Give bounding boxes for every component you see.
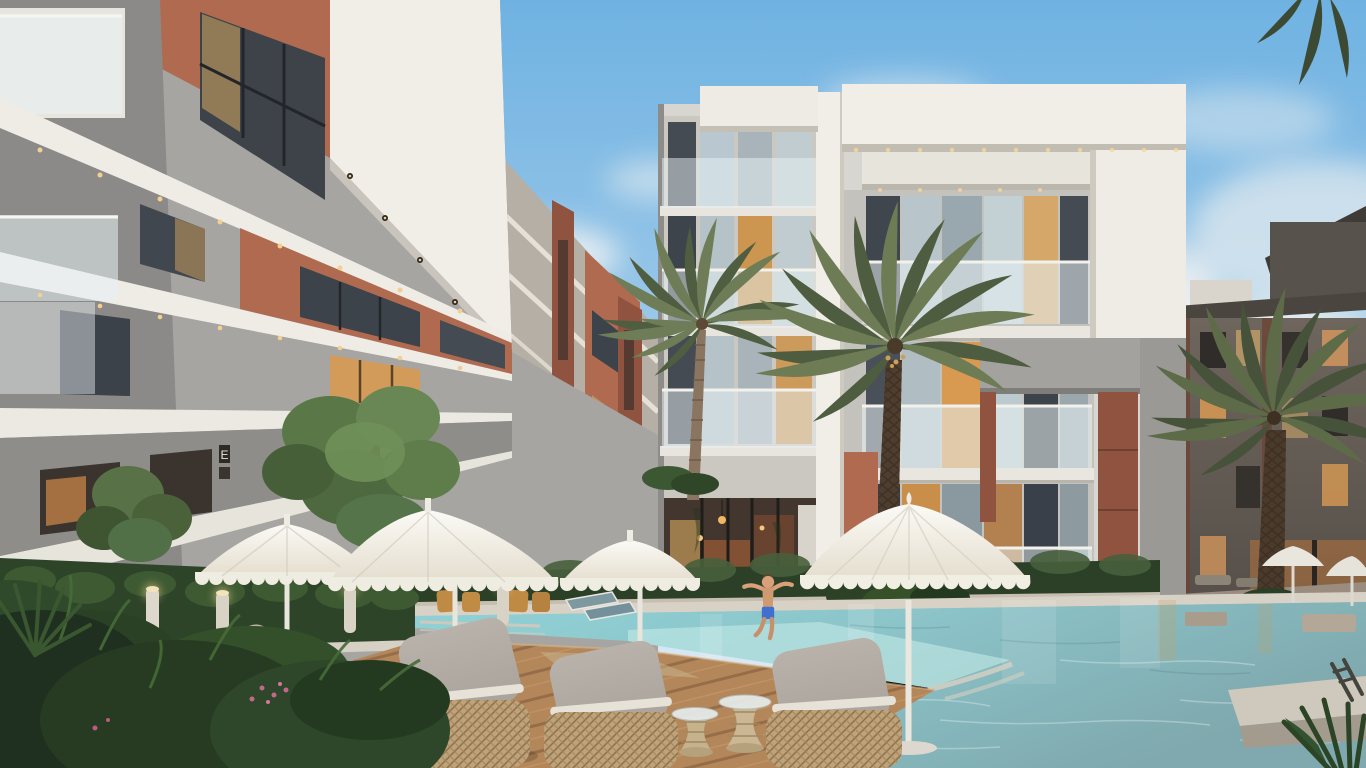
wicker-chair-3 — [544, 637, 678, 768]
architectural-render: E — [0, 0, 1366, 768]
entrance-plaque: E — [219, 445, 230, 479]
render-canvas: E — [0, 0, 1366, 768]
svg-text:E: E — [220, 448, 228, 462]
